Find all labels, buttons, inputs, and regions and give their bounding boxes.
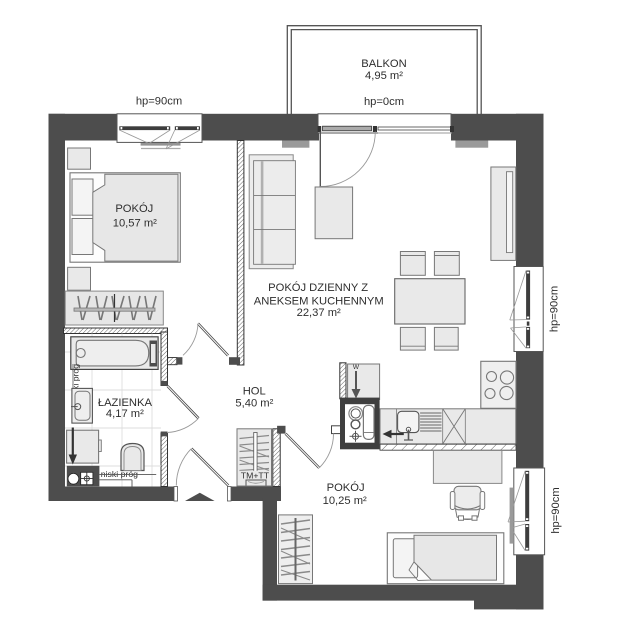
svg-text:5,40 m²: 5,40 m² xyxy=(235,398,273,410)
svg-text:4,17 m²: 4,17 m² xyxy=(106,408,144,420)
svg-text:22,37 m²: 22,37 m² xyxy=(297,307,341,319)
svg-text:hp=0cm: hp=0cm xyxy=(364,96,404,108)
svg-text:POKÓJ: POKÓJ xyxy=(327,481,365,494)
svg-text:POKÓJ DZIENNY Z: POKÓJ DZIENNY Z xyxy=(268,281,368,294)
svg-text:hp=90cm: hp=90cm xyxy=(550,487,562,533)
svg-text:HOL: HOL xyxy=(243,385,266,397)
svg-text:10,57 m²: 10,57 m² xyxy=(113,217,157,229)
svg-text:4,95 m²: 4,95 m² xyxy=(365,70,403,82)
svg-text:hp=90cm: hp=90cm xyxy=(136,95,182,107)
svg-text:niski próg: niski próg xyxy=(101,469,138,479)
svg-text:BALKON: BALKON xyxy=(361,58,406,70)
svg-text:TM+TT: TM+TT xyxy=(241,470,270,480)
svg-text:W: W xyxy=(353,364,360,371)
svg-text:hp=90cm: hp=90cm xyxy=(549,286,561,332)
svg-text:10,25 m²: 10,25 m² xyxy=(323,495,367,507)
svg-text:ANEKSEM KUCHENNYM: ANEKSEM KUCHENNYM xyxy=(254,296,384,308)
svg-text:POKÓJ: POKÓJ xyxy=(115,202,153,215)
